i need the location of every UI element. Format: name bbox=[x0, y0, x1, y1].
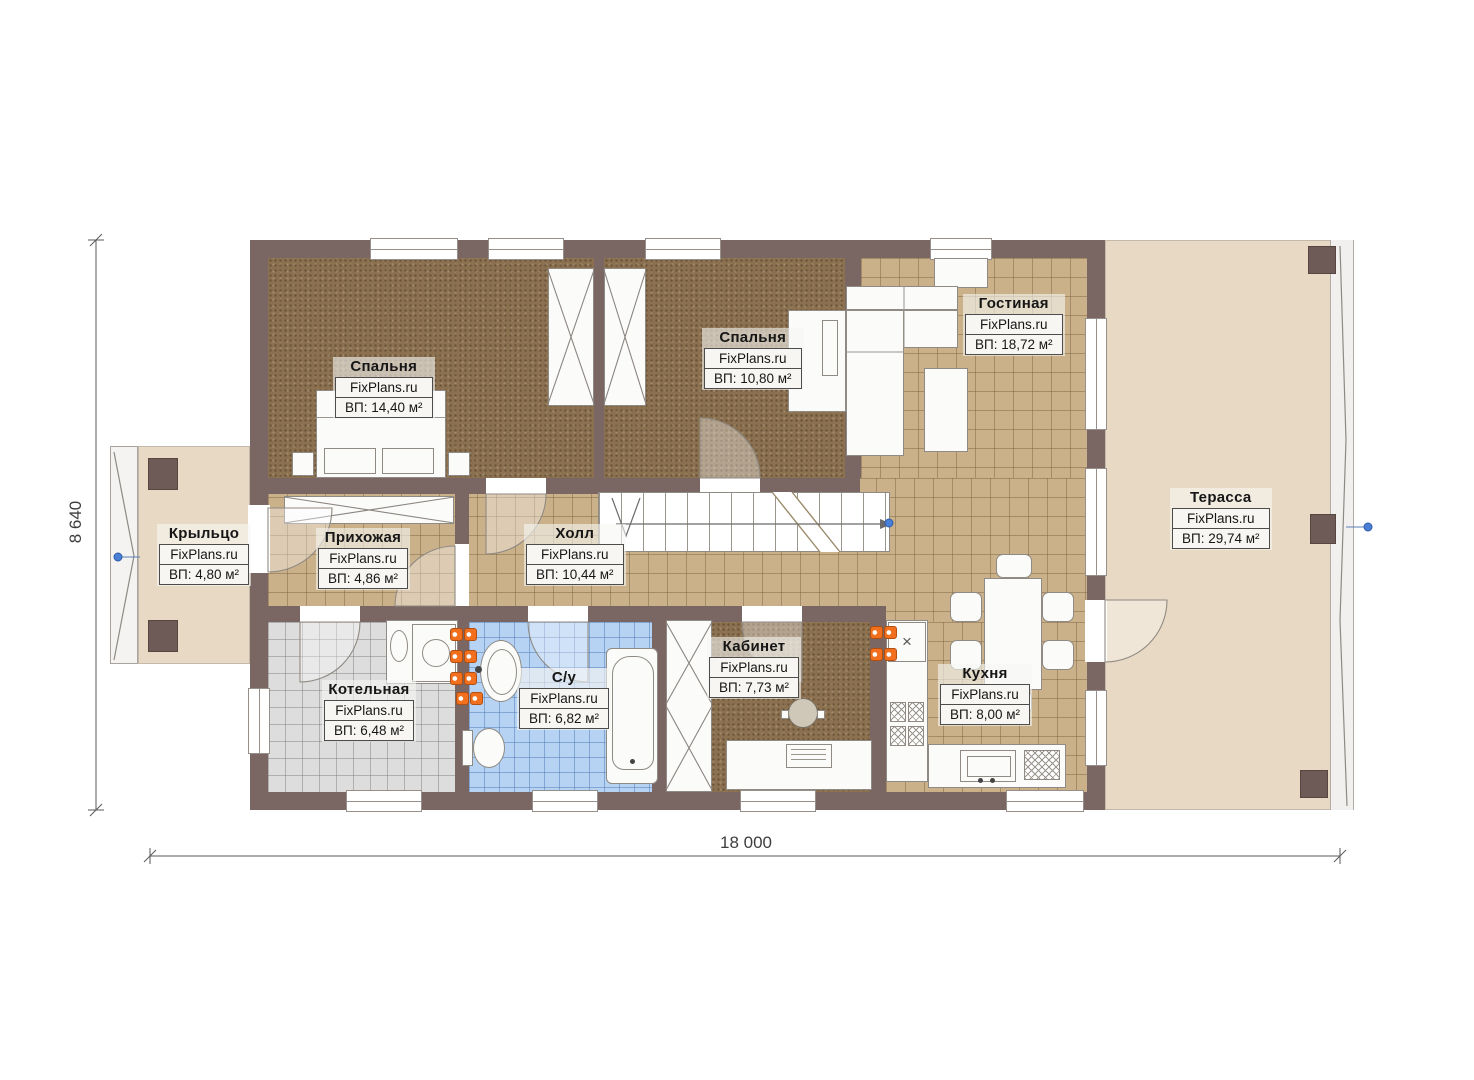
dining-chair-right-2 bbox=[1042, 640, 1074, 670]
bed-pillow-left bbox=[324, 448, 376, 474]
office-chair-arm-right bbox=[817, 710, 825, 719]
room-label-office: Кабинет FixPlans.ru ВП: 7,73 м² bbox=[707, 637, 801, 699]
window-bedroom2-top bbox=[645, 238, 721, 260]
brand-watermark: FixPlans.ru bbox=[520, 689, 608, 709]
bed-pillow-right bbox=[382, 448, 434, 474]
brand-watermark: FixPlans.ru bbox=[1173, 509, 1269, 529]
room-area: ВП: 8,00 м² bbox=[941, 705, 1029, 724]
room-name: Кухня bbox=[940, 665, 1030, 682]
room-label-terrace: Терасса FixPlans.ru ВП: 29,74 м² bbox=[1170, 488, 1272, 550]
terrace-post-bottom bbox=[1300, 770, 1328, 798]
socket-boiler-8 bbox=[470, 692, 483, 705]
wardrobe-entry bbox=[284, 496, 454, 524]
room-label-boiler: Котельная FixPlans.ru ВП: 6,48 м² bbox=[322, 680, 416, 742]
dining-chair-left-1 bbox=[950, 592, 982, 622]
dining-chair-top bbox=[996, 554, 1032, 578]
porch-post-top bbox=[148, 458, 178, 490]
sofa-chaise bbox=[846, 310, 904, 456]
wall-hall-bottom-d bbox=[802, 606, 870, 622]
window-kitchen-right bbox=[1085, 690, 1107, 766]
washing-machine-drum bbox=[422, 639, 450, 667]
socket-boiler-2 bbox=[464, 628, 477, 641]
room-name: Холл bbox=[526, 525, 624, 542]
office-chair-arm-left bbox=[781, 710, 789, 719]
room-area: ВП: 4,86 м² bbox=[319, 569, 407, 588]
marker-dot-terrace bbox=[1364, 523, 1372, 531]
kitchen-sink-basin bbox=[967, 756, 1011, 777]
room-area: ВП: 10,44 м² bbox=[527, 565, 623, 584]
room-area: ВП: 29,74 м² bbox=[1173, 529, 1269, 548]
porch-post-bottom bbox=[148, 620, 178, 652]
room-name: С/у bbox=[519, 669, 609, 686]
dining-chair-right-1 bbox=[1042, 592, 1074, 622]
wall-entry-hall bbox=[455, 494, 469, 544]
nightstand-right bbox=[448, 452, 470, 476]
window-living-top bbox=[930, 238, 992, 260]
kitchen-sink bbox=[960, 750, 1016, 782]
window-living-right-2 bbox=[1085, 468, 1107, 576]
boiler-sink bbox=[390, 630, 408, 662]
window-wardrobe-top bbox=[488, 238, 564, 260]
socket-kitchen-4 bbox=[884, 648, 897, 661]
door-gap-entrance bbox=[248, 505, 270, 573]
closet-bathroom-office bbox=[666, 620, 712, 792]
room-area: ВП: 18,72 м² bbox=[966, 335, 1062, 354]
socket-boiler-1 bbox=[450, 628, 463, 641]
socket-boiler-3 bbox=[450, 650, 463, 663]
bathroom-sink bbox=[480, 640, 522, 702]
room-area: ВП: 14,40 м² bbox=[336, 398, 432, 417]
room-area: ВП: 4,80 м² bbox=[160, 565, 248, 584]
window-bedroom1-top bbox=[370, 238, 458, 260]
brand-watermark: FixPlans.ru bbox=[325, 701, 413, 721]
room-name: Котельная bbox=[324, 681, 414, 698]
dimension-height-label: 8 640 bbox=[66, 490, 86, 554]
socket-boiler-7 bbox=[456, 692, 469, 705]
room-name: Крыльцо bbox=[159, 525, 249, 542]
brand-watermark: FixPlans.ru bbox=[319, 549, 407, 569]
sink-faucet-dot-2 bbox=[990, 778, 995, 783]
room-name: Спальня bbox=[704, 329, 802, 346]
window-kitchen-bottom bbox=[1006, 790, 1084, 812]
brand-watermark: FixPlans.ru bbox=[160, 545, 248, 565]
window-office-bottom bbox=[740, 790, 816, 812]
floor-plan-canvas: × bbox=[0, 0, 1474, 1080]
room-label-kitchen: Кухня FixPlans.ru ВП: 8,00 м² bbox=[938, 664, 1032, 726]
room-name: Терасса bbox=[1172, 489, 1270, 506]
socket-kitchen-3 bbox=[870, 648, 883, 661]
toilet-tank bbox=[462, 730, 473, 766]
room-label-hall: Холл FixPlans.ru ВП: 10,44 м² bbox=[524, 524, 626, 586]
dish-rack bbox=[1024, 750, 1060, 780]
dimension-width-label: 18 000 bbox=[700, 833, 792, 853]
stove-burner-4 bbox=[908, 726, 924, 746]
porch-steps bbox=[110, 446, 138, 664]
stove-burner-2 bbox=[908, 702, 924, 722]
socket-boiler-4 bbox=[464, 650, 477, 663]
socket-boiler-5 bbox=[450, 672, 463, 685]
wardrobe-bedroom1 bbox=[548, 268, 594, 406]
sink-faucet-dot-1 bbox=[978, 778, 983, 783]
window-living-sill bbox=[934, 258, 988, 288]
window-boiler-left bbox=[248, 688, 270, 754]
room-label-porch: Крыльцо FixPlans.ru ВП: 4,80 м² bbox=[157, 524, 251, 586]
socket-kitchen-1 bbox=[870, 626, 883, 639]
room-name: Спальня bbox=[335, 358, 433, 375]
room-area: ВП: 6,48 м² bbox=[325, 721, 413, 740]
room-label-bathroom: С/у FixPlans.ru ВП: 6,82 м² bbox=[517, 668, 611, 730]
socket-boiler-6 bbox=[464, 672, 477, 685]
room-name: Кабинет bbox=[709, 638, 799, 655]
wall-hall-bottom-c bbox=[588, 606, 742, 622]
brand-watermark: FixPlans.ru bbox=[705, 349, 801, 369]
room-area: ВП: 10,80 м² bbox=[705, 369, 801, 388]
office-chair bbox=[788, 698, 818, 728]
bathtub bbox=[606, 648, 658, 784]
window-bathroom-bottom bbox=[532, 790, 598, 812]
bathtub-drain bbox=[630, 759, 635, 764]
door-gap-bedroom1 bbox=[486, 478, 546, 494]
wardrobe-bedroom2 bbox=[604, 268, 646, 406]
bathroom-sink-bowl bbox=[487, 649, 517, 695]
nightstand-left bbox=[292, 452, 314, 476]
brand-watermark: FixPlans.ru bbox=[527, 545, 623, 565]
room-name: Гостиная bbox=[965, 295, 1063, 312]
brand-watermark: FixPlans.ru bbox=[966, 315, 1062, 335]
terrace-post-middle bbox=[1310, 514, 1336, 544]
stove-burner-3 bbox=[890, 726, 906, 746]
window-living-right-1 bbox=[1085, 318, 1107, 430]
door-gap-boiler bbox=[300, 606, 360, 622]
door-gap-terrace bbox=[1085, 600, 1107, 662]
terrace-post-top bbox=[1308, 246, 1336, 274]
bathtub-inner bbox=[612, 656, 654, 770]
door-gap-office bbox=[742, 606, 802, 622]
toilet-bowl bbox=[473, 728, 505, 768]
bed-single-pillow bbox=[822, 320, 838, 376]
wall-bedroom-divider bbox=[594, 258, 604, 478]
door-gap-entry-hall bbox=[455, 544, 469, 606]
room-label-entry: Прихожая FixPlans.ru ВП: 4,86 м² bbox=[316, 528, 410, 590]
socket-kitchen-2 bbox=[884, 626, 897, 639]
window-boiler-bottom bbox=[346, 790, 422, 812]
door-gap-bathroom bbox=[528, 606, 588, 622]
staircase bbox=[598, 492, 890, 552]
room-area: ВП: 7,73 м² bbox=[710, 678, 798, 697]
brand-watermark: FixPlans.ru bbox=[336, 378, 432, 398]
coffee-table bbox=[924, 368, 968, 452]
room-name: Прихожая bbox=[318, 529, 408, 546]
wall-hall-bottom-a bbox=[268, 606, 300, 622]
room-label-bedroom2: Спальня FixPlans.ru ВП: 10,80 м² bbox=[702, 328, 804, 390]
room-label-living: Гостиная FixPlans.ru ВП: 18,72 м² bbox=[963, 294, 1065, 356]
sofa-back bbox=[846, 286, 958, 310]
brand-watermark: FixPlans.ru bbox=[710, 658, 798, 678]
wall-bedrooms-hall-a bbox=[268, 478, 486, 494]
brand-watermark: FixPlans.ru bbox=[941, 685, 1029, 705]
room-area: ВП: 6,82 м² bbox=[520, 709, 608, 728]
office-printer bbox=[786, 744, 832, 768]
stove-burner-1 bbox=[890, 702, 906, 722]
room-label-bedroom1: Спальня FixPlans.ru ВП: 14,40 м² bbox=[333, 357, 435, 419]
